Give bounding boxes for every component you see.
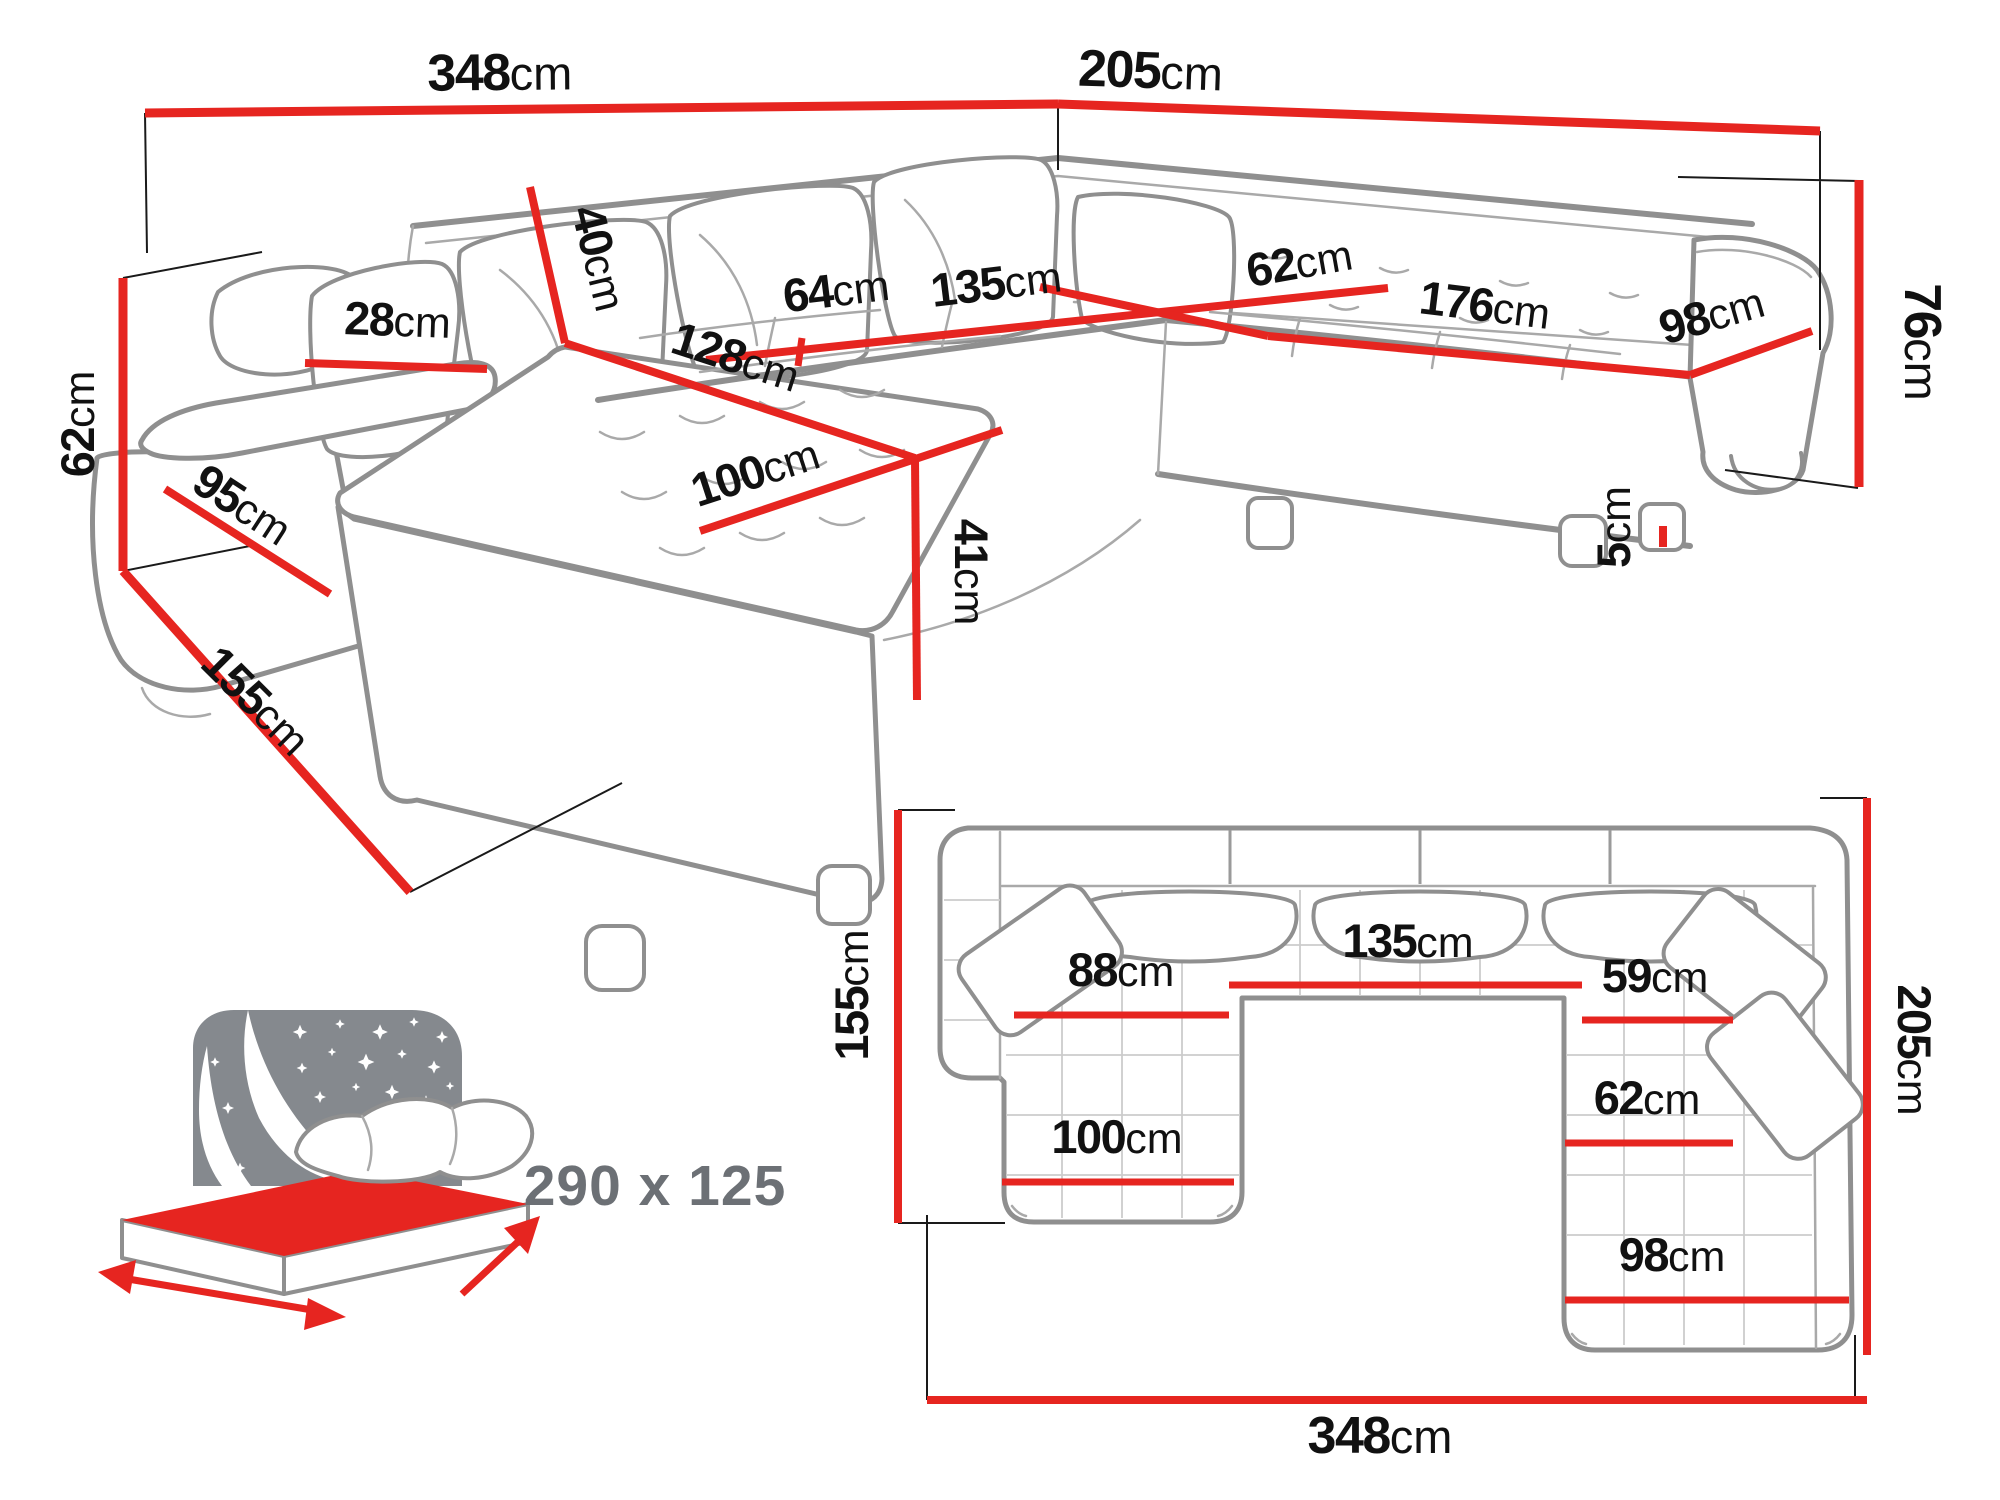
plan-label-100: 100cm <box>1051 1110 1182 1163</box>
dim-label-205: 205cm <box>1077 39 1224 102</box>
dim-label-28: 28cm <box>343 291 451 348</box>
plan-label-155: 155cm <box>825 929 878 1060</box>
sleeping-area-label: 290 x 125 <box>524 1154 787 1218</box>
dim-label-348: 348cm <box>427 43 572 102</box>
plan-label-59: 59cm <box>1602 949 1709 1002</box>
furniture-dimension-diagram: 348cm 205cm 40cm 62cm 28cm 64cm 135cm 62… <box>0 0 2000 1500</box>
diagram-svg: 348cm 205cm 40cm 62cm 28cm 64cm 135cm 62… <box>0 0 2000 1500</box>
dim-label-76: 76cm <box>1893 283 1951 401</box>
plan-label-62: 62cm <box>1594 1071 1701 1124</box>
back-cushion-4 <box>873 157 1058 342</box>
plan-label-98: 98cm <box>1619 1228 1726 1281</box>
plan-view-drawing <box>940 828 1870 1350</box>
sofa-leg <box>586 926 644 990</box>
dim-label-5: 5cm <box>1587 486 1640 568</box>
sofa-bed-function-icon: 290 x 125 <box>98 1010 786 1330</box>
plan-label-135: 135cm <box>1342 914 1473 967</box>
plan-label-205: 205cm <box>1888 984 1941 1115</box>
right-front-face-left-edge <box>1158 322 1166 474</box>
plan-label-88: 88cm <box>1068 943 1175 996</box>
dim-label-62-right: 62cm <box>1242 226 1356 297</box>
dim-label-41: 41cm <box>945 519 998 626</box>
sofa-leg <box>1248 498 1292 548</box>
dim-label-176: 176cm <box>1417 270 1554 339</box>
dim-line-348 <box>145 104 1058 113</box>
dim-line-176 <box>1268 336 1690 375</box>
sofa-leg <box>818 866 870 924</box>
dim-line-205 <box>1058 104 1820 131</box>
dim-line-41 <box>915 458 917 700</box>
plan-label-348: 348cm <box>1308 1407 1453 1465</box>
dim-label-62-left: 62cm <box>51 371 104 478</box>
